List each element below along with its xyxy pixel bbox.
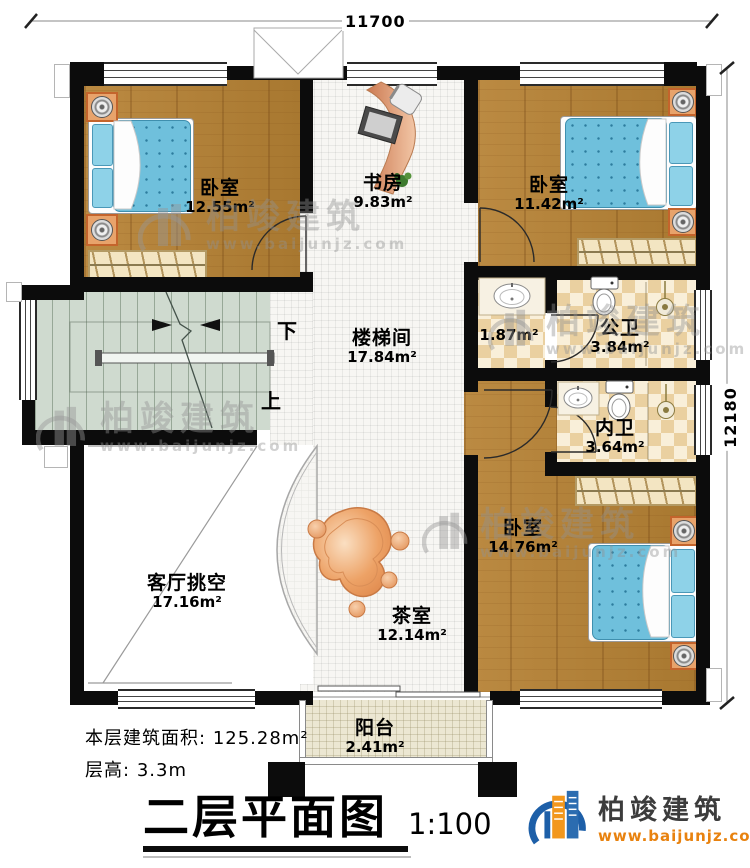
room-label-bedroom-bottom: 卧室 14.76m²: [463, 518, 583, 555]
room-area: 3.84m²: [560, 339, 680, 356]
room-label-bedroom-top-left: 卧室 12.55m²: [160, 178, 280, 215]
room-area: 12.14m²: [352, 627, 472, 644]
room-label-tea-room: 茶室 12.14m²: [352, 606, 472, 643]
floor-area-label: 本层建筑面积:: [85, 728, 206, 749]
sliding-door: [313, 686, 490, 697]
brand-url: www.baijunjz.com: [598, 827, 750, 845]
storey-height-note: 层高: 3.3m: [85, 756, 187, 782]
title-text: 二层平面图: [143, 793, 388, 841]
room-name: 阳台: [315, 718, 435, 739]
room-label-bedroom-top-right: 卧室 11.42m²: [489, 175, 609, 212]
room-area: 2.41m²: [315, 739, 435, 756]
room-area: 17.84m²: [322, 349, 442, 366]
title-underline: [143, 846, 408, 852]
room-area: 3.64m²: [555, 439, 675, 456]
drawing-title: 二层平面图 1:100: [143, 793, 492, 841]
room-name: 楼梯间: [322, 328, 442, 349]
brand-logo: 柏竣建筑 www.baijunjz.com: [528, 786, 750, 854]
stool: [381, 572, 397, 588]
room-name: 卧室: [463, 518, 583, 539]
stair-details: [70, 292, 274, 428]
room-area: 9.83m²: [323, 194, 443, 211]
room-label-balcony: 阳台 2.41m²: [315, 718, 435, 755]
room-name: 客厅挑空: [117, 573, 257, 594]
room-name: 公卫: [560, 318, 680, 339]
storey-height-value: 3.3m: [137, 760, 187, 781]
title-scale: 1:100: [408, 807, 492, 842]
room-name: 卧室: [160, 178, 280, 199]
room-name: 卧室: [489, 175, 609, 196]
storey-height-label: 层高:: [85, 760, 130, 781]
brand-logo-icon: [528, 786, 590, 854]
stair-down-label: 下: [277, 315, 297, 344]
room-label-living-void: 客厅挑空 17.16m²: [117, 573, 257, 610]
room-label-public-bathroom: 公卫 3.84m²: [560, 318, 680, 355]
brand-name: 柏竣建筑: [598, 795, 750, 826]
room-name: 书房: [323, 173, 443, 194]
floor-area-note: 本层建筑面积: 125.28m²: [85, 724, 309, 750]
tea-table: [308, 508, 409, 617]
stool: [391, 532, 409, 550]
floor-area-value: 125.28m²: [213, 728, 309, 749]
room-area: 14.76m²: [463, 539, 583, 556]
title-underline-thin: [143, 856, 411, 858]
room-label-stairwell: 楼梯间 17.84m²: [322, 328, 442, 365]
room-label-washbasin: 1.87m²: [478, 327, 540, 344]
room-name: 内卫: [555, 418, 675, 439]
void-outline: [88, 446, 257, 683]
room-area: 1.87m²: [478, 327, 540, 344]
room-label-private-bathroom: 内卫 3.64m²: [555, 418, 675, 455]
dimension-top: 11700: [342, 12, 409, 31]
room-area: 11.42m²: [489, 196, 609, 213]
dimension-right: 12180: [721, 384, 740, 451]
stair-up-label: 上: [261, 385, 281, 414]
stool: [308, 520, 326, 538]
roof-bay-symbol: [254, 28, 343, 78]
room-area: 17.16m²: [117, 594, 257, 611]
room-area: 12.55m²: [160, 199, 280, 216]
floor-plan-page: 卧室 12.55m² 书房 9.83m² 卧室 11.42m² 楼梯间 17.8…: [0, 0, 750, 868]
room-name: 茶室: [352, 606, 472, 627]
room-label-study: 书房 9.83m²: [323, 173, 443, 210]
